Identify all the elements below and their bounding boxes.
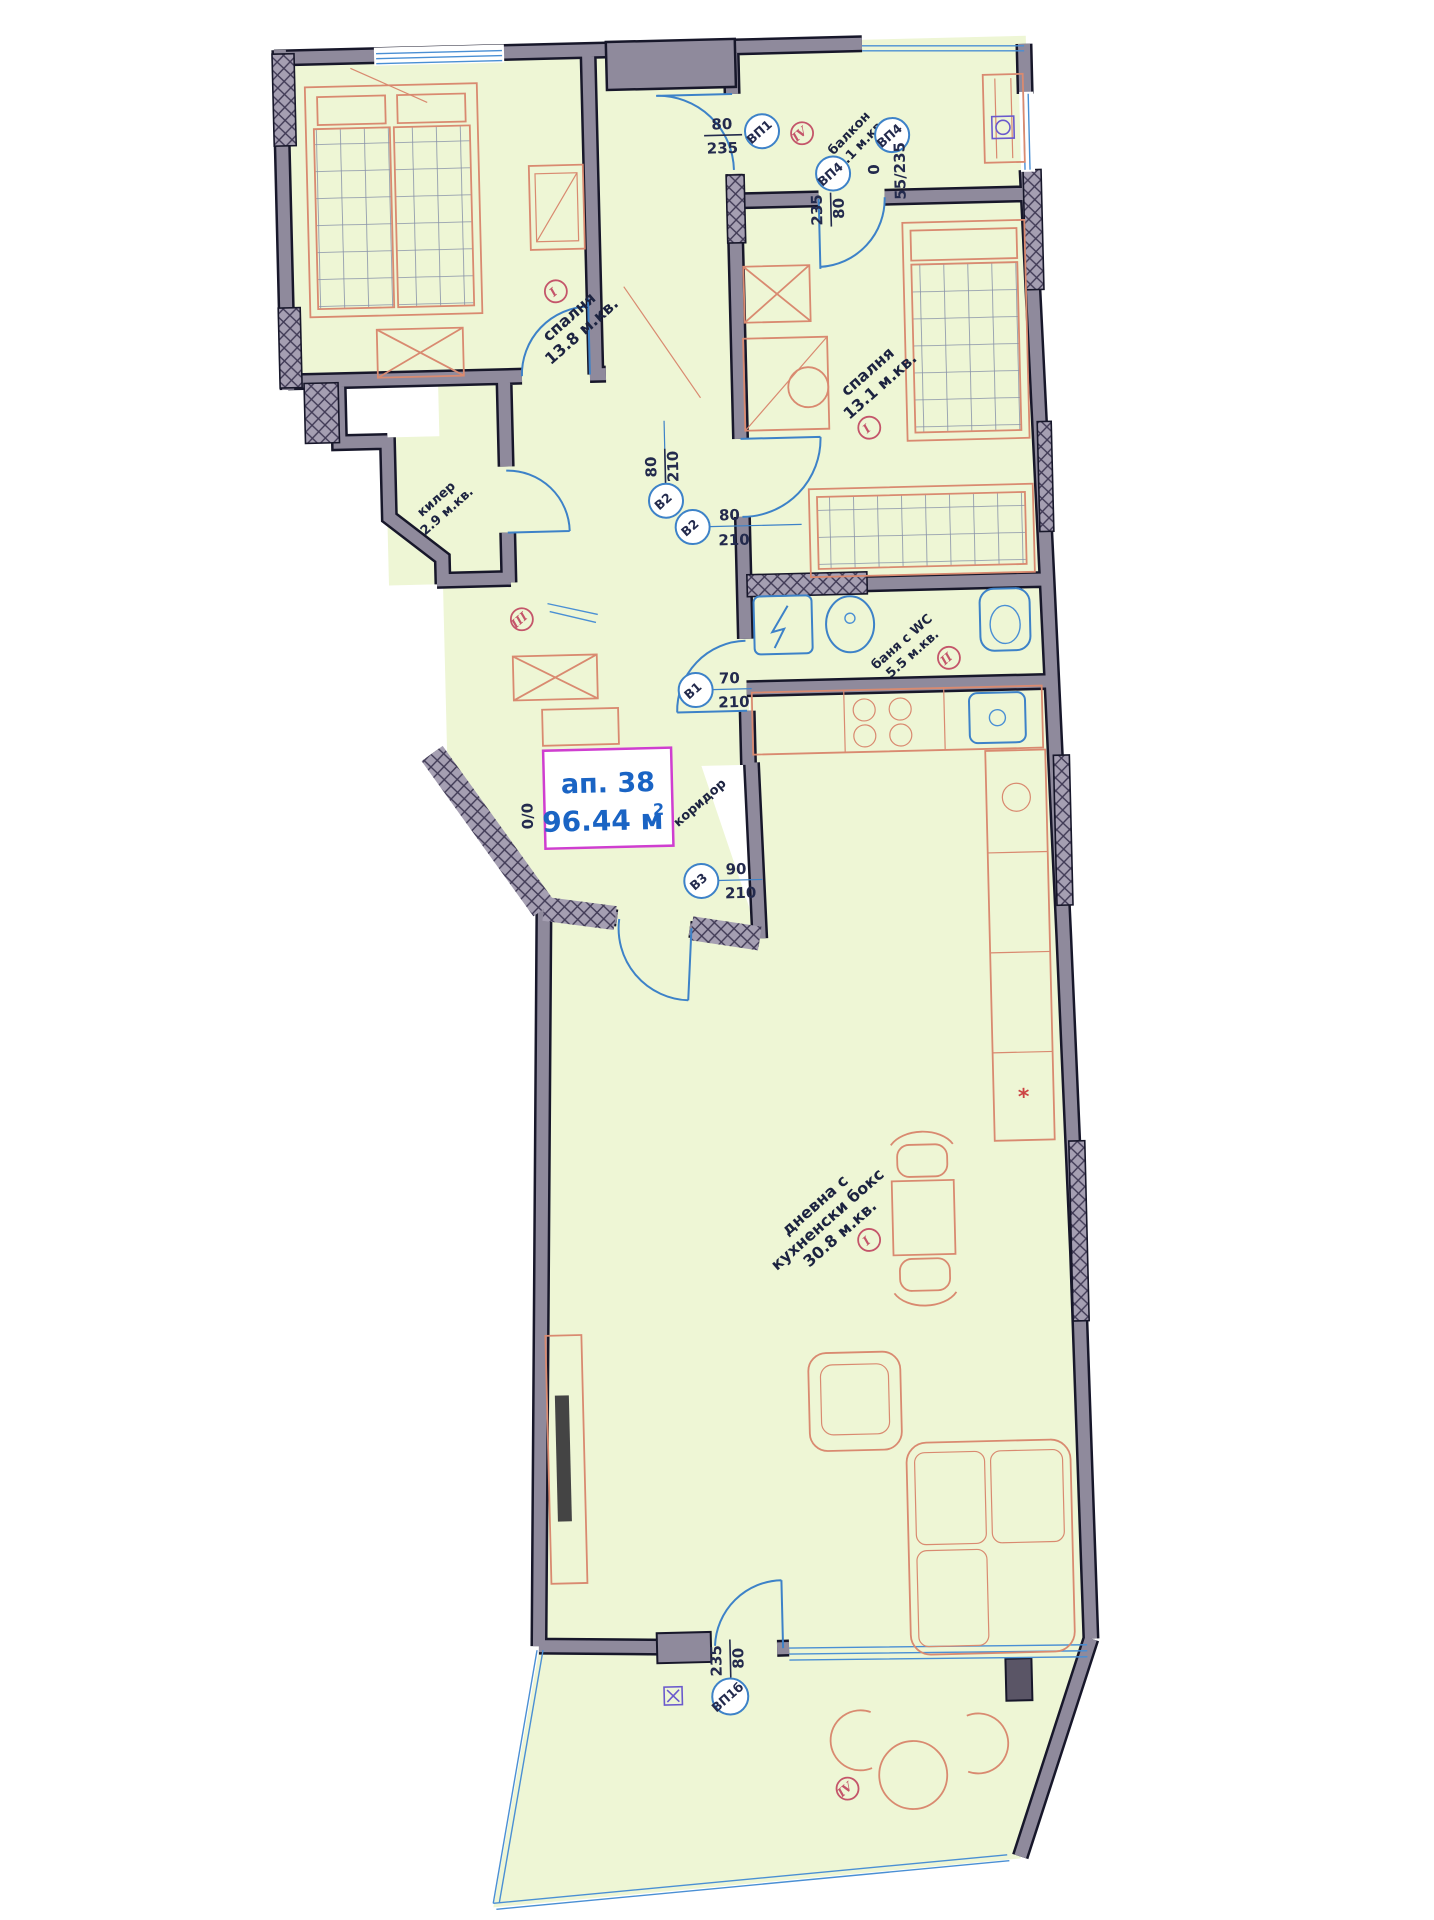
svg-text:90: 90 [725,860,746,879]
hatched-wall-right3 [1053,755,1073,905]
svg-text:80: 80 [719,506,740,525]
svg-text:80: 80 [830,198,849,219]
svg-text:210: 210 [718,531,750,550]
svg-text:210: 210 [664,451,683,483]
hatched-wall-right4 [1069,1141,1089,1321]
french-window-bg [1019,92,1035,172]
svg-text:0: 0 [865,164,883,175]
apartment-label-box[interactable]: ап. 38 96.44 м 2 [540,748,673,849]
svg-text:80: 80 [711,115,732,134]
hatched-wall-right2 [1037,421,1054,531]
stair-core-wall [606,39,736,90]
hatched-wall-topleft [272,54,296,147]
daybed-mattress [817,492,1027,569]
svg-text:55/235: 55/235 [890,142,909,200]
balcony-corner-block [1005,1658,1032,1701]
double-bed-mattress-left [314,127,394,309]
hatched-wall-hall [726,175,746,243]
svg-text:235: 235 [707,1645,726,1677]
hatched-wall-left [278,308,302,389]
apartment-number: ап. 38 [560,767,655,800]
svg-text:235: 235 [707,139,739,158]
svg-text:235: 235 [808,194,827,226]
kitchen-star-symbol: * [1018,1085,1031,1110]
hatched-wall-storage [304,383,339,444]
zero-dimension-marker: 0/0 [518,803,537,830]
svg-text:210: 210 [718,693,750,712]
living-bottom-wall-block [657,1632,712,1663]
svg-text:70: 70 [719,669,740,688]
floor-plan-drawing: спалня 13.8 м.кв. спалня 13.1 м.кв. балк… [0,0,1434,1920]
svg-text:80: 80 [729,1648,748,1669]
single-bed-mattress [911,262,1021,433]
double-bed-mattress-right [394,125,474,307]
apartment-area-sup: 2 [653,800,665,819]
apartment-area: 96.44 м [542,803,664,839]
floor-plan-page: спалня 13.8 м.кв. спалня 13.1 м.кв. балк… [0,0,1434,1920]
svg-text:80: 80 [642,456,661,477]
svg-text:210: 210 [725,884,757,903]
